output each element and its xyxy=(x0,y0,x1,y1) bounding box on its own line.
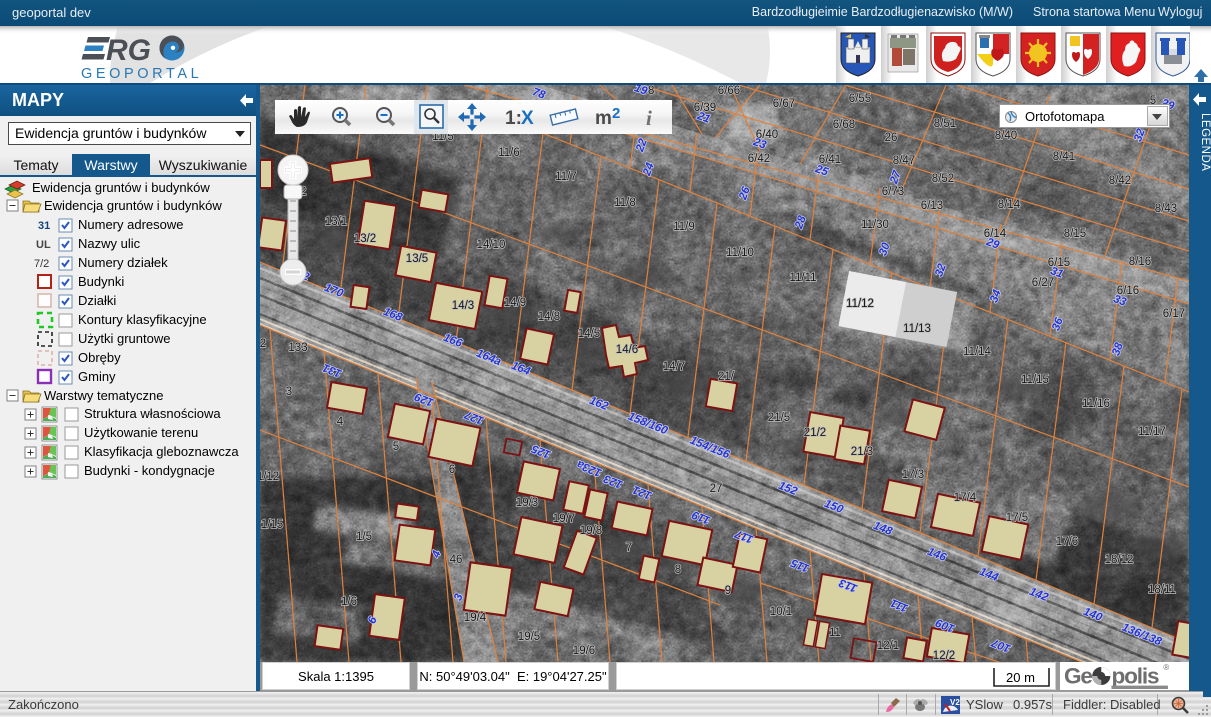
svg-text:2: 2 xyxy=(260,338,266,350)
svg-text:21/5: 21/5 xyxy=(768,412,790,424)
svg-text:11/7: 11/7 xyxy=(555,171,577,183)
svg-text:6/73: 6/73 xyxy=(882,186,904,198)
svg-text:Klasyfikacja gleboznawcza: Klasyfikacja gleboznawcza xyxy=(84,444,239,459)
svg-text:18/12: 18/12 xyxy=(1105,554,1134,566)
svg-text:11/12: 11/12 xyxy=(846,298,874,310)
svg-text:133: 133 xyxy=(288,342,307,354)
svg-text:Działki: Działki xyxy=(78,293,116,308)
svg-text:19/7: 19/7 xyxy=(553,513,575,525)
svg-text:X: X xyxy=(521,108,534,129)
svg-text:19/8: 19/8 xyxy=(580,525,602,537)
svg-text:9: 9 xyxy=(725,585,731,597)
svg-text:UL: UL xyxy=(36,239,51,251)
svg-text:11/15: 11/15 xyxy=(1021,374,1049,386)
svg-text:14/6: 14/6 xyxy=(616,344,638,356)
svg-text:4: 4 xyxy=(337,416,344,428)
svg-text:6/67: 6/67 xyxy=(773,98,795,110)
svg-text:11/14: 11/14 xyxy=(963,346,992,358)
svg-text:8/40: 8/40 xyxy=(995,130,1017,142)
svg-text:i: i xyxy=(646,106,652,130)
svg-text:17/5: 17/5 xyxy=(1006,512,1028,524)
svg-text:11/6: 11/6 xyxy=(498,147,520,159)
svg-text:31: 31 xyxy=(38,220,50,232)
svg-text:12/1: 12/1 xyxy=(877,640,899,652)
svg-text:11/11: 11/11 xyxy=(789,272,816,284)
svg-text:Użytkowanie terenu: Użytkowanie terenu xyxy=(84,425,198,440)
svg-text:1/6: 1/6 xyxy=(341,596,357,608)
svg-text:Użytki gruntowe: Użytki gruntowe xyxy=(78,331,170,346)
svg-text:13/5: 13/5 xyxy=(406,253,428,265)
svg-text:18/11: 18/11 xyxy=(1148,584,1176,596)
svg-text:8/52: 8/52 xyxy=(932,173,954,185)
svg-text:6/66: 6/66 xyxy=(718,85,740,97)
svg-text:20 m: 20 m xyxy=(1006,670,1035,685)
svg-text:21/3: 21/3 xyxy=(851,446,873,458)
svg-text:GEOPORTAL: GEOPORTAL xyxy=(81,66,202,81)
svg-text:19/5: 19/5 xyxy=(518,631,540,643)
svg-text:27: 27 xyxy=(710,483,723,495)
svg-text:6/27: 6/27 xyxy=(1032,277,1054,289)
svg-text:10/1: 10/1 xyxy=(770,606,792,618)
svg-text:14/7: 14/7 xyxy=(663,361,685,373)
svg-text:19/3: 19/3 xyxy=(516,497,538,509)
svg-text:17/3: 17/3 xyxy=(902,469,924,481)
svg-text:21/2: 21/2 xyxy=(804,427,826,439)
svg-text:Numery adresowe: Numery adresowe xyxy=(78,217,184,232)
svg-text:m: m xyxy=(595,108,612,129)
svg-text:14/9: 14/9 xyxy=(504,297,526,309)
svg-text:17/4: 17/4 xyxy=(954,492,977,504)
svg-text:13/2: 13/2 xyxy=(354,233,376,245)
svg-text:8/42: 8/42 xyxy=(1109,175,1131,187)
svg-text:8/51: 8/51 xyxy=(934,118,956,130)
svg-text:11/10: 11/10 xyxy=(726,247,754,259)
svg-text:8/15: 8/15 xyxy=(1064,228,1086,240)
svg-text:6/68: 6/68 xyxy=(833,119,855,131)
svg-text:1/5: 1/5 xyxy=(356,531,372,543)
svg-text:12/2: 12/2 xyxy=(933,650,955,662)
svg-text:14/8: 14/8 xyxy=(538,311,560,323)
svg-text:Budynki: Budynki xyxy=(78,274,124,289)
svg-text:7: 7 xyxy=(626,542,632,554)
svg-text:11/30: 11/30 xyxy=(861,219,889,231)
svg-text:11/13: 11/13 xyxy=(903,323,931,335)
svg-text:8/16: 8/16 xyxy=(1129,256,1151,268)
svg-text:8/47: 8/47 xyxy=(893,155,915,167)
svg-text:13/1: 13/1 xyxy=(325,216,347,228)
svg-text:11/16: 11/16 xyxy=(1082,398,1110,410)
svg-text:17/6: 17/6 xyxy=(1056,536,1078,548)
svg-text:1/15: 1/15 xyxy=(261,519,283,531)
svg-text:8: 8 xyxy=(675,564,681,576)
svg-text:V2: V2 xyxy=(950,698,960,707)
svg-text:3: 3 xyxy=(286,386,292,398)
svg-text:Ge: Ge xyxy=(1064,663,1092,688)
svg-text:11/17: 11/17 xyxy=(1138,426,1166,438)
svg-text:5: 5 xyxy=(393,441,399,453)
svg-text:19/4: 19/4 xyxy=(464,612,487,624)
svg-text:6: 6 xyxy=(449,464,455,476)
svg-text:11/8: 11/8 xyxy=(614,197,636,209)
svg-text:Struktura własnościowa: Struktura własnościowa xyxy=(84,406,221,421)
svg-text:Numery działek: Numery działek xyxy=(78,255,168,270)
svg-text:46: 46 xyxy=(450,554,463,566)
svg-text:1/12: 1/12 xyxy=(260,471,279,483)
svg-text:21/: 21/ xyxy=(718,371,735,383)
svg-text:Ewidencja gruntów i budynków: Ewidencja gruntów i budynków xyxy=(44,198,222,213)
svg-text:8/14: 8/14 xyxy=(998,199,1021,211)
svg-text:14/5: 14/5 xyxy=(578,328,600,340)
svg-text:7/2: 7/2 xyxy=(34,258,49,270)
svg-text:8/41: 8/41 xyxy=(1053,151,1075,163)
svg-text:6/17: 6/17 xyxy=(1163,308,1185,320)
svg-text:Warstwy tematyczne: Warstwy tematyczne xyxy=(44,388,163,403)
svg-text:14/10: 14/10 xyxy=(477,239,506,251)
svg-text:Gminy: Gminy xyxy=(78,369,116,384)
svg-text:®: ® xyxy=(1163,663,1169,672)
svg-text:Ewidencja gruntów i budynków: Ewidencja gruntów i budynków xyxy=(32,180,210,195)
svg-text:Nazwy ulic: Nazwy ulic xyxy=(78,236,141,251)
svg-text:2: 2 xyxy=(612,105,620,122)
svg-text:RG: RG xyxy=(106,35,151,67)
svg-text:11/9: 11/9 xyxy=(673,221,695,233)
svg-text:Kontury klasyfikacyjne: Kontury klasyfikacyjne xyxy=(78,312,207,327)
svg-text:polis: polis xyxy=(1111,663,1159,688)
svg-text:Budynki - kondygnacje: Budynki - kondygnacje xyxy=(84,463,215,478)
svg-text:6/42: 6/42 xyxy=(748,153,770,165)
svg-text:11: 11 xyxy=(829,627,841,639)
svg-text:1:: 1: xyxy=(505,108,522,129)
svg-text:19/6: 19/6 xyxy=(573,645,595,657)
svg-text:6/13: 6/13 xyxy=(921,200,943,212)
svg-text:8/43: 8/43 xyxy=(1155,203,1177,215)
svg-text:26: 26 xyxy=(885,132,898,144)
svg-text:Obręby: Obręby xyxy=(78,350,121,365)
svg-text:14/3: 14/3 xyxy=(452,300,474,312)
svg-text:6/55: 6/55 xyxy=(849,93,871,105)
